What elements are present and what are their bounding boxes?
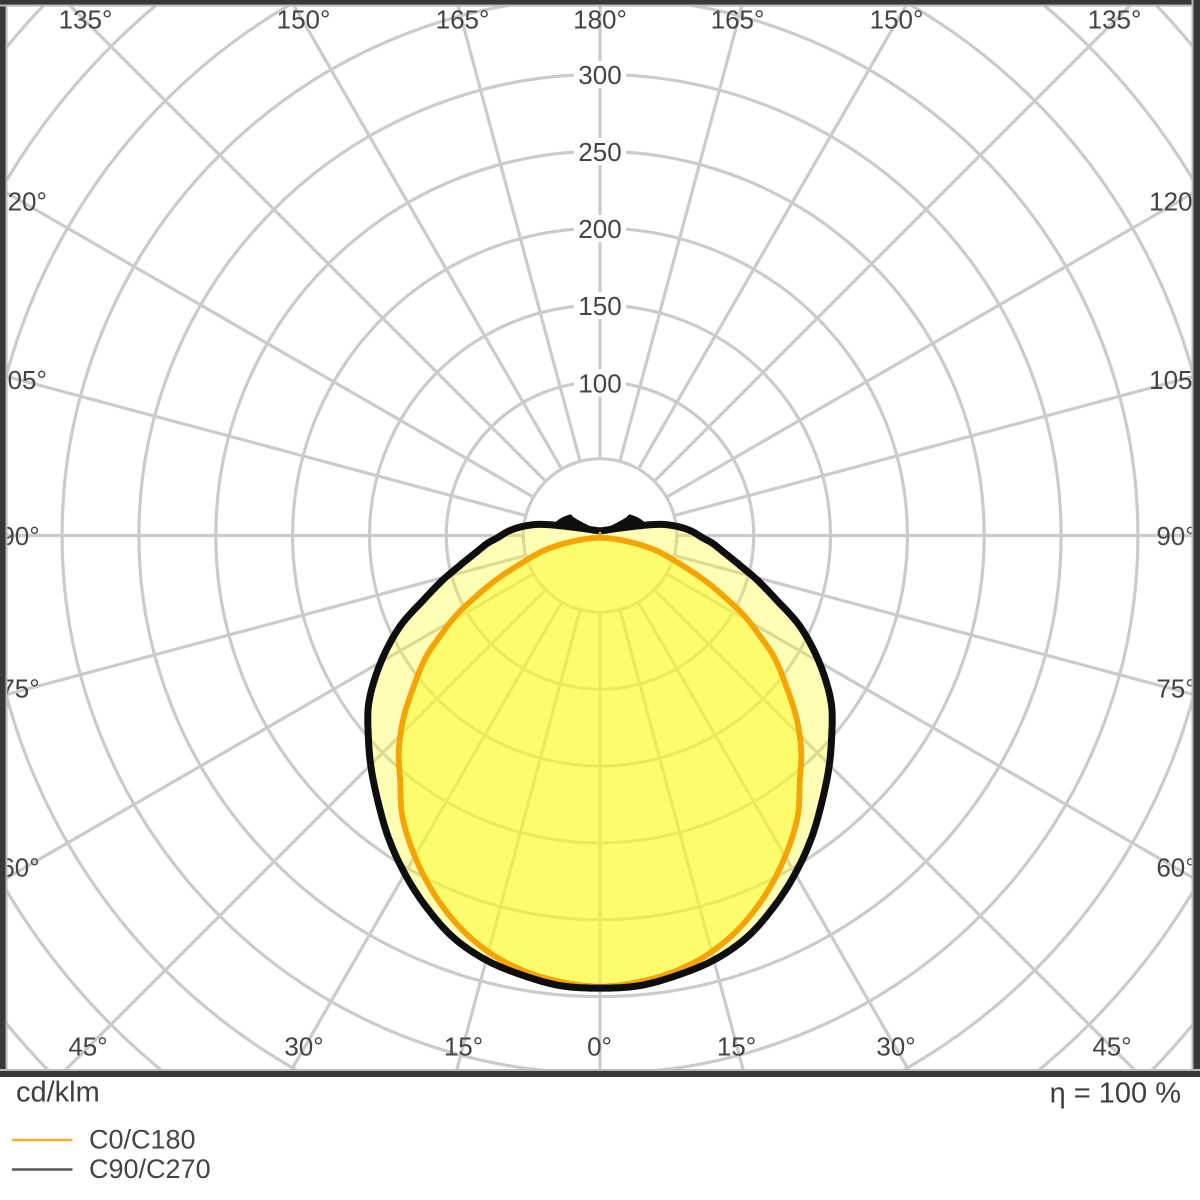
svg-text:150°: 150° — [277, 5, 331, 35]
svg-text:135°: 135° — [59, 5, 113, 35]
svg-text:100: 100 — [578, 369, 621, 399]
svg-text:165°: 165° — [711, 5, 765, 35]
svg-text:0°: 0° — [587, 1032, 612, 1062]
svg-text:200: 200 — [578, 214, 621, 244]
svg-text:135°: 135° — [1088, 5, 1142, 35]
svg-text:250: 250 — [578, 137, 621, 167]
svg-text:C0/C180: C0/C180 — [89, 1125, 196, 1155]
svg-text:15°: 15° — [444, 1032, 483, 1062]
svg-text:η = 100 %: η = 100 % — [1050, 1078, 1181, 1110]
svg-text:150°: 150° — [870, 5, 924, 35]
svg-text:30°: 30° — [876, 1032, 915, 1062]
svg-text:165°: 165° — [436, 5, 490, 35]
svg-text:30°: 30° — [284, 1032, 323, 1062]
svg-text:15°: 15° — [717, 1032, 756, 1062]
svg-text:C90/C270: C90/C270 — [89, 1154, 211, 1184]
svg-text:60°: 60° — [1156, 853, 1195, 883]
svg-text:150: 150 — [578, 291, 621, 321]
svg-text:90°: 90° — [1156, 521, 1195, 551]
svg-text:cd/klm: cd/klm — [16, 1077, 100, 1109]
svg-text:75°: 75° — [1156, 674, 1195, 704]
svg-text:45°: 45° — [68, 1032, 107, 1062]
svg-text:45°: 45° — [1092, 1032, 1131, 1062]
svg-text:180°: 180° — [573, 5, 627, 35]
svg-text:300: 300 — [578, 60, 621, 90]
